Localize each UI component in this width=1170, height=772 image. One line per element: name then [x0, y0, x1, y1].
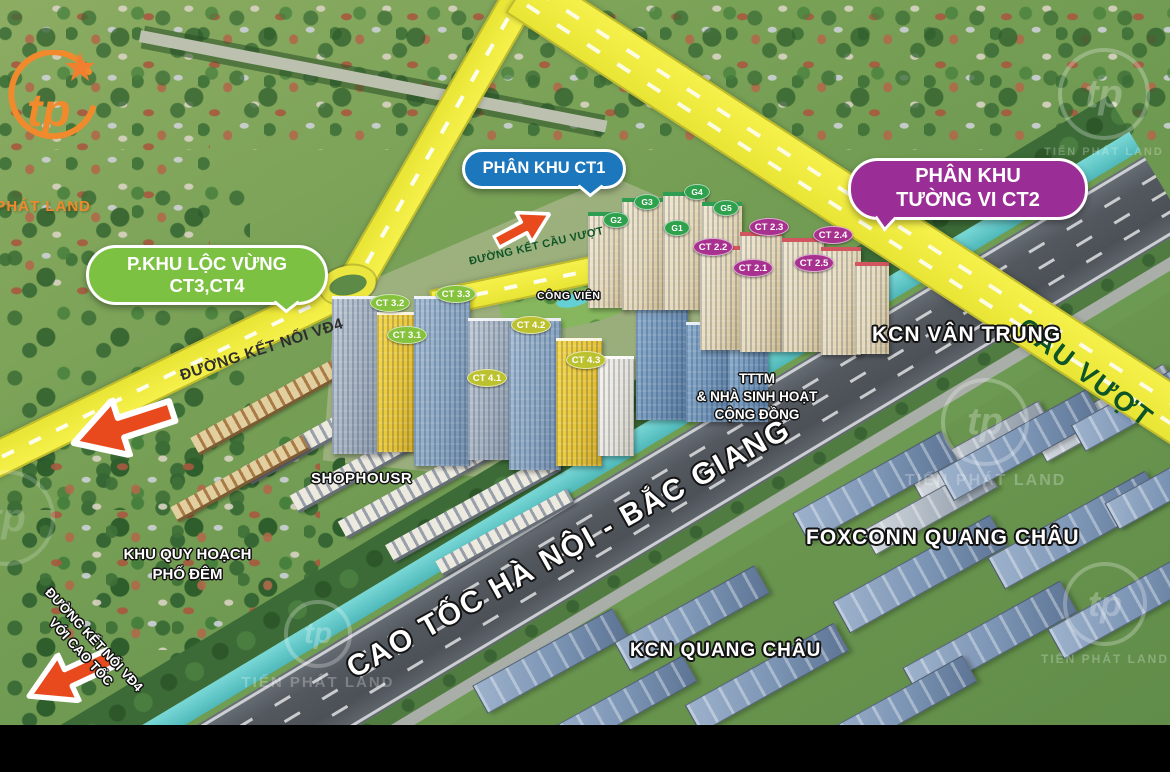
tower-badge-g5: G5: [713, 200, 739, 216]
masterplan-aerial-map: ĐƯỜNG KẾT NỐI VĐ4 ĐƯỜNG KẾT CẦU VƯỢT CẦU…: [0, 0, 1170, 772]
community-center-line1: TTTM: [662, 370, 852, 388]
zone-bubble-ct1: PHÂN KHU CT1: [462, 149, 626, 189]
watermark-monogram: tp: [1063, 562, 1147, 646]
community-center-label: TTTM & NHÀ SINH HOẠT CỘNG ĐỒNG: [662, 370, 852, 425]
tower-badge-ct4-1: CT 4.1: [467, 369, 507, 387]
tower-badge-g2: G2: [603, 212, 629, 228]
brand-logo-mark: tp: [0, 50, 114, 158]
community-center-line2: & NHÀ SINH HOẠT: [662, 388, 852, 406]
apartment-tower-ct2: [740, 232, 782, 352]
shophouse-label: SHOPHOUSR: [311, 470, 412, 487]
foxconn-label: FOXCONN QUANG CHÂU: [806, 526, 1080, 550]
night-street-line2: PHỐ ĐÊM: [100, 565, 275, 585]
watermark-monogram: tp: [941, 378, 1029, 466]
watermark-brand: TIẾN PHÁT LAND: [1038, 146, 1170, 158]
watermark: tp TIẾN PHÁT LAND: [1030, 562, 1170, 666]
tower-badge-ct3-2: CT 3.2: [370, 294, 410, 312]
brand-name: TIẾN PHÁT LAND: [0, 198, 172, 215]
apartment-tower: [414, 296, 470, 466]
watermark: tp TIẾN PHÁT LAND: [1038, 48, 1170, 158]
tower-badge-g1: G1: [664, 220, 690, 236]
tower-badge-ct3-3: CT 3.3: [436, 285, 476, 303]
tower-badge-ct4-3: CT 4.3: [566, 351, 606, 369]
zone-bubble-ct1-text: PHÂN KHU CT1: [465, 159, 623, 178]
zone-bubble-ct34: P.KHU LỘC VỪNG CT3,CT4: [86, 245, 328, 305]
tower-badge-g3: G3: [634, 194, 660, 210]
watermark-monogram: tp: [1058, 48, 1150, 140]
tower-badge-ct2-3: CT 2.3: [749, 218, 789, 236]
watermark-monogram: tp: [0, 470, 55, 566]
watermark-monogram: tp: [284, 600, 352, 668]
night-street-line1: KHU QUY HOẠCH: [100, 545, 275, 565]
apartment-tower-ct1: [622, 198, 664, 310]
watermark: tp TIẾN PHÁT LAND: [905, 378, 1065, 490]
zone-bubble-ct34-line1: P.KHU LỘC VỪNG: [89, 253, 325, 275]
tower-badge-ct2-1: CT 2.1: [733, 259, 773, 277]
park-label: CÔNG VIÊN: [537, 290, 600, 302]
tower-badge-ct3-1: CT 3.1: [387, 326, 427, 344]
tower-badge-ct4-2: CT 4.2: [511, 316, 551, 334]
kcn-van-trung-label: KCN VÂN TRUNG: [872, 323, 1061, 347]
logo-monogram: tp: [27, 84, 70, 136]
night-street-label: KHU QUY HOẠCH PHỐ ĐÊM: [100, 545, 275, 584]
letterbox-bar: [0, 725, 1170, 772]
apartment-tower: [509, 318, 561, 470]
tower-badge-ct2-5: CT 2.5: [794, 254, 834, 272]
tower-badge-ct2-4: CT 2.4: [813, 226, 853, 244]
zone-bubble-ct2: PHÂN KHU TƯỜNG VI CT2: [848, 158, 1088, 220]
apartment-tower-ct2: [700, 246, 740, 350]
tower-badge-ct2-2: CT 2.2: [693, 238, 733, 256]
watermark: tp TIẾN PHÁT LAND: [238, 600, 398, 691]
community-center-line3: CỘNG ĐỒNG: [662, 406, 852, 424]
watermark-brand: TIẾN PHÁT LAND: [1030, 652, 1170, 666]
brand-logo: tp TIẾN PHÁT LAND: [0, 50, 194, 163]
tower-badge-g4: G4: [684, 184, 710, 200]
kcn-quang-chau-label: KCN QUANG CHÂU: [630, 640, 821, 662]
watermark: tp: [0, 470, 62, 566]
zone-bubble-ct2-line1: PHÂN KHU: [851, 165, 1085, 189]
watermark-brand: TIẾN PHÁT LAND: [905, 472, 1065, 490]
apartment-tower: [468, 318, 512, 460]
apartment-tower: [598, 356, 634, 456]
watermark-brand: TIẾN PHÁT LAND: [238, 674, 398, 691]
